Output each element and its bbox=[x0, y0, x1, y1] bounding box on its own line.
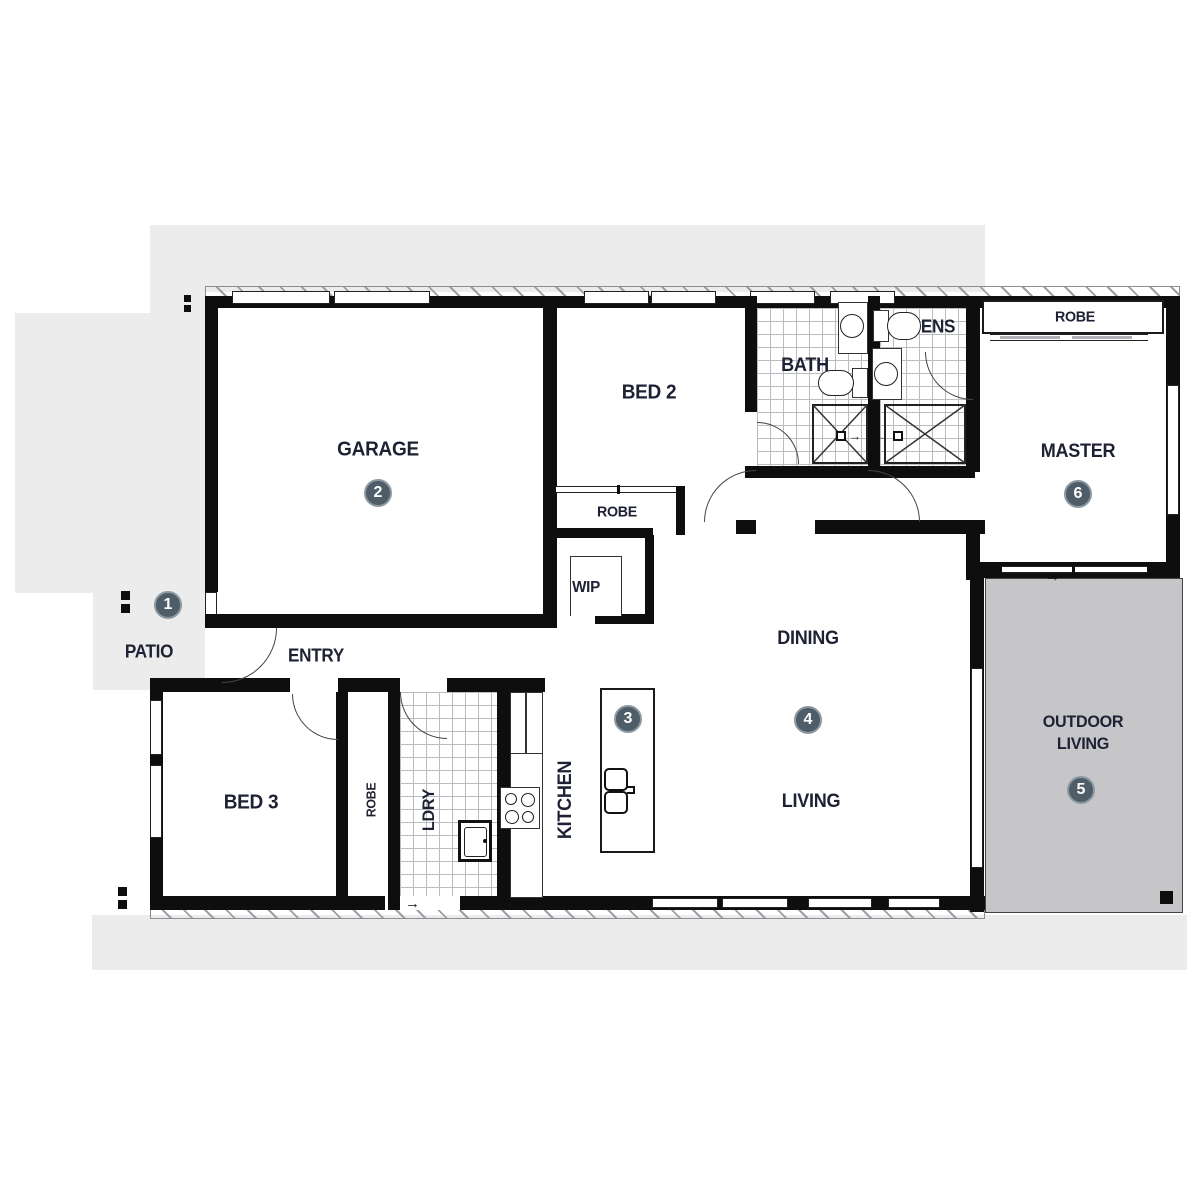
marker-1-patio: 1 bbox=[154, 591, 182, 619]
wall-bed3-north-b bbox=[338, 678, 400, 692]
kitchen-fridge-cabinet bbox=[510, 692, 543, 754]
burner-icon bbox=[505, 793, 517, 805]
meter-dot bbox=[184, 295, 191, 302]
outdoor-living-label-line1: OUTDOOR bbox=[1043, 712, 1124, 732]
bed3-label: BED 3 bbox=[224, 792, 279, 815]
living-window-south-3 bbox=[808, 898, 872, 908]
wall-west-garage bbox=[205, 296, 218, 592]
outdoor-post bbox=[1160, 891, 1173, 904]
dining-label: DINING bbox=[777, 628, 838, 650]
patio-label: PATIO bbox=[125, 642, 173, 663]
bath-mixer-arrow: → bbox=[849, 431, 861, 441]
bed2-window-north-2 bbox=[651, 291, 716, 304]
master-slider-tick bbox=[1072, 565, 1075, 574]
living-window-south-1 bbox=[652, 898, 718, 908]
island-tap-icon bbox=[627, 786, 635, 794]
wall-robe2-south bbox=[543, 528, 653, 538]
marker-2-garage: 2 bbox=[364, 479, 392, 507]
bath-window-north bbox=[750, 291, 815, 304]
kitchen-cabinet-divider bbox=[525, 693, 527, 753]
wall-bed3-north-a bbox=[150, 678, 290, 692]
burner-icon bbox=[505, 810, 519, 824]
living-window-south-4 bbox=[888, 898, 940, 908]
marker-5-outdoor: 5 bbox=[1067, 776, 1095, 804]
ens-toilet-bowl-icon bbox=[887, 312, 921, 340]
meter-dot bbox=[184, 305, 191, 312]
bed2-window-north-1 bbox=[584, 291, 649, 304]
wall-robe3-east bbox=[388, 692, 400, 910]
marker-6-master: 6 bbox=[1064, 480, 1092, 508]
garage-window-north-1 bbox=[232, 291, 330, 304]
bed3-window-west-1 bbox=[150, 700, 162, 755]
robe-bed2-label: ROBE bbox=[597, 504, 637, 521]
meter-dot bbox=[118, 900, 127, 909]
marker-4-dining-living: 4 bbox=[794, 706, 822, 734]
cooktop bbox=[500, 787, 540, 829]
laundry-tap-icon bbox=[483, 839, 487, 843]
wall-laundry-north bbox=[447, 678, 545, 692]
robe-bed3-label: ROBE bbox=[364, 783, 379, 818]
wall-garage-east bbox=[543, 296, 557, 623]
bath-label: BATH bbox=[781, 355, 829, 377]
wall-wip-east bbox=[645, 535, 654, 623]
wall-bath-ens-south bbox=[745, 466, 975, 478]
marker-3-kitchen: 3 bbox=[614, 705, 642, 733]
master-window-east bbox=[1167, 385, 1179, 515]
wip-label: WIP bbox=[572, 579, 600, 597]
bed2-label: BED 2 bbox=[622, 382, 677, 405]
island-sink-bowl-1 bbox=[604, 768, 628, 791]
ens-mixer-icon bbox=[893, 431, 903, 441]
laundry-label: LDRY bbox=[419, 789, 439, 831]
bath-basin-icon bbox=[840, 314, 864, 338]
island-sink-bowl-2 bbox=[604, 791, 628, 814]
bath-mixer-icon bbox=[836, 431, 846, 441]
floor-plan: → → bbox=[0, 0, 1200, 1200]
garage-window-north-2 bbox=[334, 291, 430, 304]
laundry-tub bbox=[458, 820, 492, 862]
entry-label: ENTRY bbox=[288, 646, 344, 667]
meter-dot bbox=[121, 591, 130, 600]
burner-icon bbox=[522, 811, 534, 823]
living-label: LIVING bbox=[782, 791, 840, 813]
kitchen-label: KITCHEN bbox=[555, 761, 577, 839]
robe-bed2-tick bbox=[617, 485, 620, 494]
master-robe-slider-fill bbox=[1000, 336, 1060, 339]
ens-basin-icon bbox=[874, 362, 898, 386]
ens-mixer-arrow: → bbox=[874, 431, 886, 441]
site-top-band bbox=[150, 225, 985, 292]
wall-robe2-east bbox=[676, 486, 685, 535]
wall-ens-master-lower bbox=[966, 528, 980, 580]
master-robe-slider-fill2 bbox=[1072, 336, 1132, 339]
bed3-window-west-2 bbox=[150, 765, 162, 838]
site-left-yard bbox=[15, 313, 150, 593]
living-window-south-2 bbox=[722, 898, 788, 908]
site-bottom-band bbox=[92, 915, 1187, 970]
meter-dot bbox=[121, 604, 130, 613]
laundry-exit-arrow: → bbox=[405, 899, 420, 909]
wall-bed2-east bbox=[745, 296, 757, 412]
garage-label: GARAGE bbox=[337, 439, 419, 462]
living-stacker-door-east bbox=[971, 668, 983, 868]
meter-dot bbox=[118, 887, 127, 896]
master-label: MASTER bbox=[1041, 441, 1116, 463]
ens-label: ENS bbox=[921, 317, 955, 338]
burner-icon bbox=[521, 793, 535, 807]
wall-hall-south bbox=[815, 520, 985, 534]
outdoor-living-label-line2: LIVING bbox=[1057, 734, 1109, 754]
bath-toilet-cistern-icon bbox=[852, 368, 868, 398]
master-door-arrow: → bbox=[1045, 572, 1060, 582]
robe-master-label: ROBE bbox=[1055, 309, 1095, 326]
wall-hall-stub bbox=[736, 520, 756, 534]
wall-garage-south bbox=[205, 614, 557, 628]
island-sink bbox=[604, 768, 632, 818]
